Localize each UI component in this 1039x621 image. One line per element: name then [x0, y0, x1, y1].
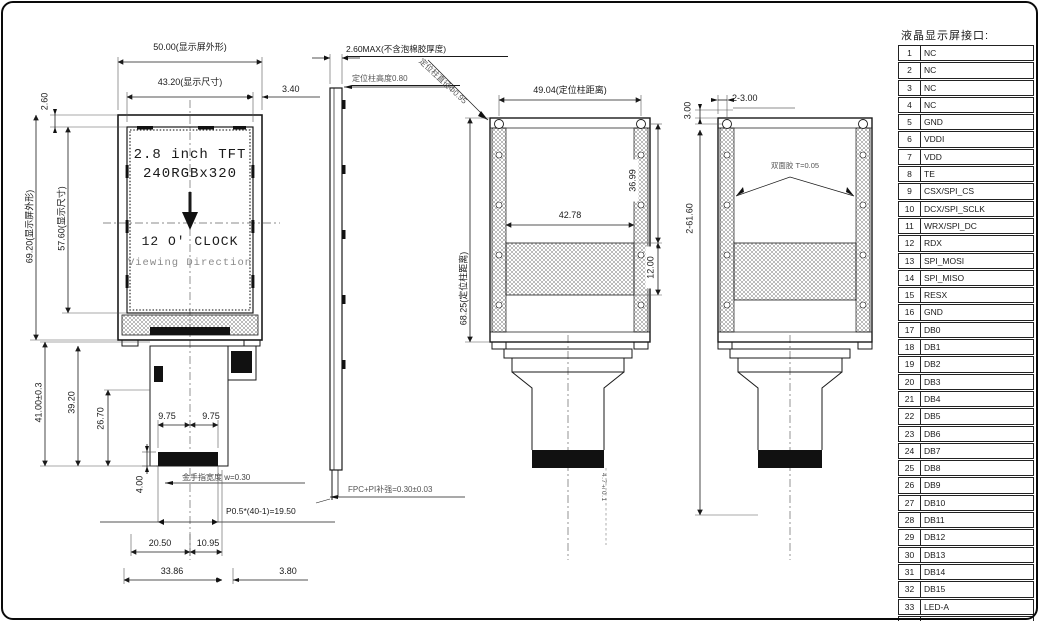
dim-9-75-left: 9.75	[148, 411, 186, 422]
screen-text-size: 2.8 inch TFT	[127, 150, 253, 161]
dim-4-00: 4.00	[135, 467, 146, 503]
pin-row: 2NC	[898, 62, 1034, 78]
dim-2-60: 2.60	[40, 84, 51, 120]
pin-name: DB0	[921, 323, 1033, 337]
pin-name: WRX/SPI_DC	[921, 219, 1033, 233]
pin-number: 1	[899, 46, 921, 60]
lcd-datasheet-drawing: 50.00(显示屏外形) 43.20(显示尺寸) 3.40 2.60 69.20…	[0, 0, 1039, 621]
pin-row: 20DB3	[898, 374, 1034, 390]
tape-note: 双面胶 T=0.05	[752, 160, 838, 171]
pin-row: 1NC	[898, 45, 1034, 61]
pin-row: 31DB14	[898, 564, 1034, 580]
pin-number: 17	[899, 323, 921, 337]
pin-row: 28DB11	[898, 512, 1034, 528]
pin-name: DB13	[921, 548, 1033, 562]
pin-row: 3NC	[898, 80, 1034, 96]
dim-50-00: 50.00(显示屏外形)	[118, 42, 262, 53]
pin-name: DB7	[921, 444, 1033, 458]
screen-text-resolution: 240RGBx320	[127, 169, 253, 180]
pin-number: 7	[899, 150, 921, 164]
pin-name: DB11	[921, 513, 1033, 527]
pin-name: DB14	[921, 565, 1033, 579]
pin-table-title: 液晶显示屏接口:	[901, 27, 989, 43]
pin-number: 12	[899, 236, 921, 250]
pin-row: 14SPI_MISO	[898, 270, 1034, 286]
pin-row: 4NC	[898, 97, 1034, 113]
screen-text-clock: 12 O' CLOCK	[127, 236, 253, 247]
pin-name: DB2	[921, 357, 1033, 371]
dim-39-20: 39.20	[67, 381, 78, 425]
tape-hatch	[734, 243, 856, 300]
dim-49-04: 49.04(定位柱距离)	[490, 85, 650, 96]
pin-row: 33LED-A	[898, 599, 1034, 615]
pin-name: DB5	[921, 409, 1033, 423]
foam-pad-hatch	[506, 243, 634, 295]
dim-36-99: 36.99	[628, 160, 639, 202]
pin-name: SPI_MISO	[921, 271, 1033, 285]
pin-name: NC	[921, 81, 1033, 95]
dim-26-70: 26.70	[96, 397, 107, 441]
pin-number: 22	[899, 409, 921, 423]
tail-dimension-note: 4.7±0.1	[600, 473, 607, 545]
dim-41-00: 41.00±0.3	[34, 368, 45, 438]
pin-number: 33	[899, 600, 921, 614]
pin-number: 27	[899, 496, 921, 510]
pin-number: 9	[899, 184, 921, 198]
pin-name: RDX	[921, 236, 1033, 250]
dim-3-00: 3.00	[683, 94, 694, 128]
pin-number: 11	[899, 219, 921, 233]
pin-number: 32	[899, 582, 921, 596]
pin-name: RESX	[921, 288, 1033, 302]
pin-name: DB3	[921, 375, 1033, 389]
back1-outline	[490, 118, 650, 342]
pin-name: DB6	[921, 427, 1033, 441]
thickness-max-note: 2.60MAX(不含泡棉胶厚度)	[346, 44, 508, 57]
pin-number: 28	[899, 513, 921, 527]
pin-name: DB9	[921, 478, 1033, 492]
pin-name: SPI_MOSI	[921, 254, 1033, 268]
back2-outline	[718, 118, 872, 342]
pin-name: GND	[921, 305, 1033, 319]
pin-number: 13	[899, 254, 921, 268]
pin-number: 18	[899, 340, 921, 354]
side-profile	[330, 88, 342, 470]
dim-3-80: 3.80	[268, 566, 308, 577]
gold-finger-note: 金手指宽度 w=0.30	[182, 472, 307, 483]
pin-row: 19DB2	[898, 356, 1034, 372]
pin-number: 15	[899, 288, 921, 302]
dim-43-20: 43.20(显示尺寸)	[127, 77, 253, 88]
dim-42-78: 42.78	[530, 210, 610, 221]
pin-row: 13SPI_MOSI	[898, 253, 1034, 269]
pin-name: DB15	[921, 582, 1033, 596]
pin-row: 7VDD	[898, 149, 1034, 165]
gold-fingers	[158, 452, 218, 466]
dim-57-60: 57.60(显示尺寸)	[57, 175, 68, 263]
pin-row: 27DB10	[898, 495, 1034, 511]
pin-number: 8	[899, 167, 921, 181]
front-view	[30, 57, 335, 584]
pin-name: TE	[921, 167, 1033, 181]
pin-number: 16	[899, 305, 921, 319]
adhesive-strip-left	[492, 128, 506, 332]
pin-row: 18DB1	[898, 339, 1034, 355]
dim-10-95: 10.95	[186, 538, 230, 549]
dim-3-40: 3.40	[282, 84, 322, 95]
pin-name: DCX/SPI_SCLK	[921, 202, 1033, 216]
screen-text-viewing-direction: Viewing Direction	[127, 258, 253, 269]
fpc-tail	[150, 346, 228, 466]
fpc-stack-note: FPC+PI补强=0.30±0.03	[348, 484, 480, 495]
pin-row: 16GND	[898, 304, 1034, 320]
pin-row: 23DB6	[898, 426, 1034, 442]
pin-name: NC	[921, 46, 1033, 60]
pin-name: DB12	[921, 530, 1033, 544]
dim-2-3-00: 2-3.00	[732, 93, 792, 104]
pin-number: 20	[899, 375, 921, 389]
pin-row: 24DB7	[898, 443, 1034, 459]
pin-row: 8TE	[898, 166, 1034, 182]
pin-row: 25DB8	[898, 460, 1034, 476]
pin-number: 25	[899, 461, 921, 475]
dim-2-61-60: 2-61.60	[685, 193, 696, 245]
pin-number: 4	[899, 98, 921, 112]
dim-68-25: 68.25(定位柱距离)	[459, 237, 470, 341]
backlight-connector	[231, 351, 252, 373]
pin-row: 12RDX	[898, 235, 1034, 251]
pin-row: 32DB15	[898, 581, 1034, 597]
pin-row: 15RESX	[898, 287, 1034, 303]
pin-name: GND	[921, 115, 1033, 129]
dim-20-50: 20.50	[129, 538, 191, 549]
pin-row: 5GND	[898, 114, 1034, 130]
fpc-connector	[758, 450, 822, 468]
pin-name: DB10	[921, 496, 1033, 510]
dim-69-20: 69.20(显示屏外形)	[25, 175, 36, 279]
pin-number: 23	[899, 427, 921, 441]
pin-row: 26DB9	[898, 477, 1034, 493]
fpc-connector	[532, 450, 604, 468]
pitch-note: P0.5*(40-1)=19.50	[226, 506, 338, 517]
pin-row: 21DB4	[898, 391, 1034, 407]
pin-name: VDD	[921, 150, 1033, 164]
pin-number: 24	[899, 444, 921, 458]
pin-row: 11WRX/SPI_DC	[898, 218, 1034, 234]
pin-number: 26	[899, 478, 921, 492]
pin-number: 3	[899, 81, 921, 95]
pin-row: 6VDDI	[898, 131, 1034, 147]
pin-number: 2	[899, 63, 921, 77]
pin-number: 5	[899, 115, 921, 129]
pin-row: 34LED-K	[898, 616, 1034, 621]
pin-number: 34	[899, 617, 921, 621]
dim-33-86: 33.86	[122, 566, 222, 577]
pin-table: 1NC2NC3NC4NC5GND6VDDI7VDD8TE9CSX/SPI_CS1…	[898, 44, 1034, 621]
pin-table-body: 1NC2NC3NC4NC5GND6VDDI7VDD8TE9CSX/SPI_CS1…	[898, 45, 1034, 621]
pin-name: DB4	[921, 392, 1033, 406]
adhesive-strip-left	[720, 128, 734, 332]
pin-name: DB1	[921, 340, 1033, 354]
pin-name: DB8	[921, 461, 1033, 475]
pin-row: 29DB12	[898, 529, 1034, 545]
pin-row: 10DCX/SPI_SCLK	[898, 201, 1034, 217]
positioning-pillar	[637, 120, 646, 129]
pin-name: NC	[921, 98, 1033, 112]
pin-number: 14	[899, 271, 921, 285]
pin-row: 9CSX/SPI_CS	[898, 183, 1034, 199]
pin-number: 21	[899, 392, 921, 406]
pin-number: 31	[899, 565, 921, 579]
pin-number: 30	[899, 548, 921, 562]
pin-number: 19	[899, 357, 921, 371]
pin-name: LED-A	[921, 600, 1033, 614]
adhesive-strip-right	[856, 128, 870, 332]
pin-row: 30DB13	[898, 547, 1034, 563]
positioning-pillar	[723, 120, 732, 129]
dim-9-75-right: 9.75	[192, 411, 230, 422]
pin-number: 29	[899, 530, 921, 544]
pin-name: VDDI	[921, 132, 1033, 146]
pin-name: CSX/SPI_CS	[921, 184, 1033, 198]
pin-number: 6	[899, 132, 921, 146]
pin-number: 10	[899, 202, 921, 216]
positioning-pillar	[859, 120, 868, 129]
dim-12-00: 12.00	[646, 247, 657, 289]
pin-row: 17DB0	[898, 322, 1034, 338]
pin-row: 22DB5	[898, 408, 1034, 424]
pin-name: LED-K	[921, 617, 1033, 621]
pin-name: NC	[921, 63, 1033, 77]
